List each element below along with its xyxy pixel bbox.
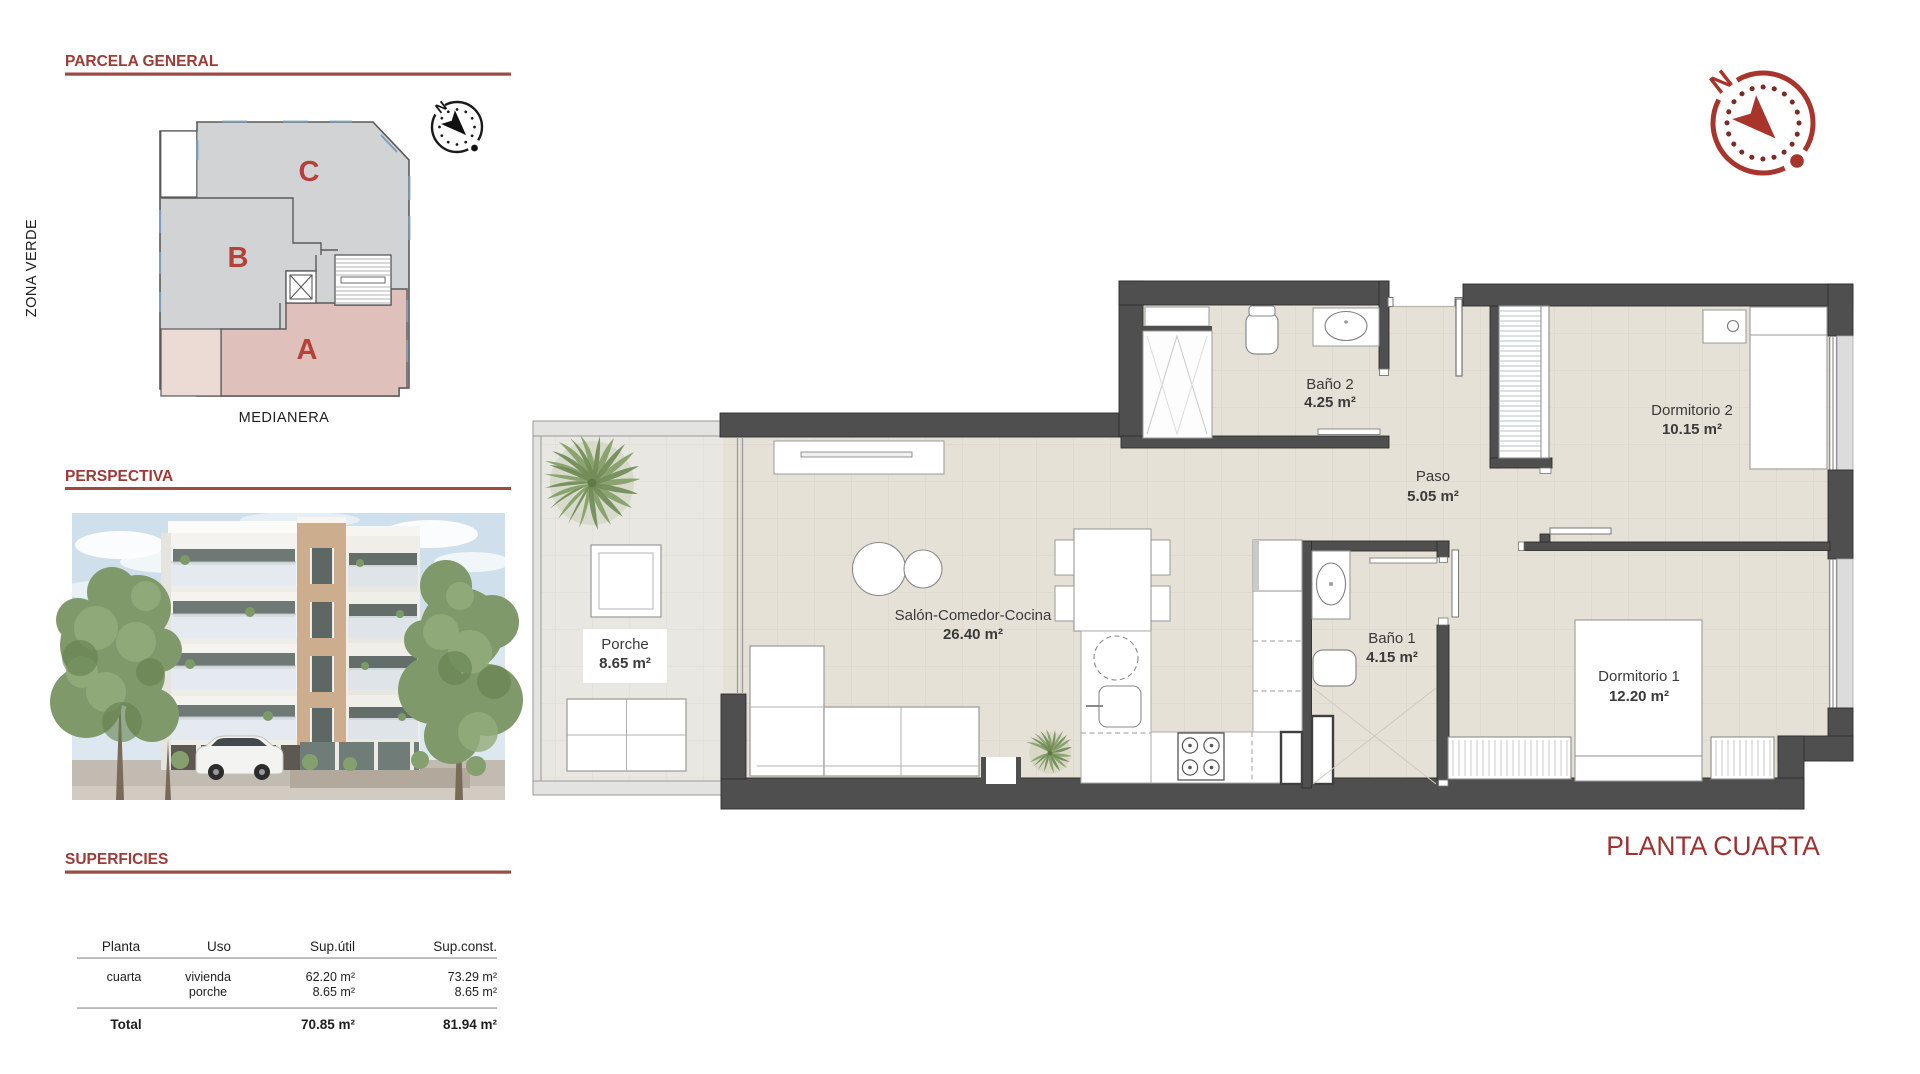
svg-text:26.40 m²: 26.40 m²	[943, 626, 1003, 643]
svg-text:12.20 m²: 12.20 m²	[1609, 688, 1669, 705]
svg-text:Sup.útil: Sup.útil	[310, 939, 355, 954]
svg-text:Porche: Porche	[601, 636, 649, 653]
svg-text:62.20 m²: 62.20 m²	[306, 970, 355, 984]
svg-text:Salón-Comedor-Cocina: Salón-Comedor-Cocina	[895, 607, 1052, 624]
svg-text:ZONA VERDE: ZONA VERDE	[24, 219, 40, 317]
svg-text:cuarta: cuarta	[107, 970, 142, 984]
svg-text:Planta: Planta	[102, 939, 141, 954]
svg-text:MEDIANERA: MEDIANERA	[239, 410, 330, 426]
svg-text:8.65 m²: 8.65 m²	[599, 655, 651, 672]
svg-text:Uso: Uso	[207, 939, 231, 954]
svg-text:N: N	[1704, 64, 1738, 100]
svg-text:Sup.const.: Sup.const.	[433, 939, 497, 954]
svg-text:N: N	[432, 98, 450, 117]
svg-text:A: A	[297, 334, 318, 366]
svg-text:73.29 m²: 73.29 m²	[448, 970, 497, 984]
svg-text:Paso: Paso	[1416, 468, 1450, 485]
svg-text:81.94 m²: 81.94 m²	[443, 1017, 498, 1032]
svg-text:5.05 m²: 5.05 m²	[1407, 488, 1459, 505]
svg-text:PLANTA CUARTA: PLANTA CUARTA	[1606, 831, 1820, 861]
svg-text:8.65 m²: 8.65 m²	[455, 985, 497, 999]
svg-text:Baño 1: Baño 1	[1368, 630, 1416, 647]
svg-text:4.15 m²: 4.15 m²	[1366, 649, 1418, 666]
svg-text:PARCELA GENERAL: PARCELA GENERAL	[65, 53, 218, 70]
svg-text:70.85 m²: 70.85 m²	[301, 1017, 356, 1032]
svg-text:porche: porche	[189, 985, 227, 999]
svg-text:C: C	[299, 156, 320, 188]
svg-text:8.65 m²: 8.65 m²	[313, 985, 355, 999]
svg-text:Total: Total	[110, 1017, 141, 1032]
svg-text:10.15 m²: 10.15 m²	[1662, 421, 1722, 438]
svg-text:4.25 m²: 4.25 m²	[1304, 394, 1356, 411]
svg-text:SUPERFICIES: SUPERFICIES	[65, 851, 168, 868]
svg-text:Dormitorio 1: Dormitorio 1	[1598, 668, 1680, 685]
svg-text:Baño 2: Baño 2	[1306, 376, 1354, 393]
svg-text:PERSPECTIVA: PERSPECTIVA	[65, 468, 173, 485]
svg-text:vivienda: vivienda	[185, 970, 231, 984]
svg-text:Dormitorio 2: Dormitorio 2	[1651, 402, 1733, 419]
svg-text:B: B	[228, 242, 249, 274]
